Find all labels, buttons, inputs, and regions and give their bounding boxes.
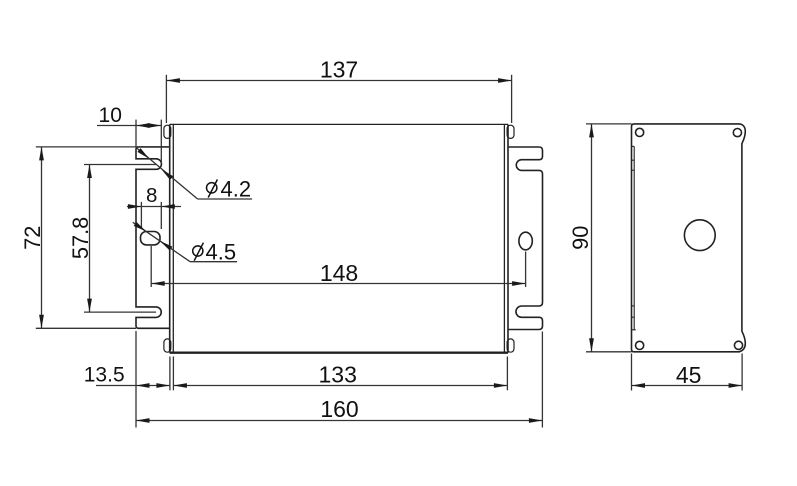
svg-text:72: 72 bbox=[20, 226, 45, 250]
svg-text:45: 45 bbox=[676, 362, 702, 388]
svg-text:90: 90 bbox=[568, 226, 593, 250]
svg-text:57.8: 57.8 bbox=[68, 217, 93, 259]
svg-text:10: 10 bbox=[99, 104, 122, 127]
svg-text:133: 133 bbox=[319, 362, 357, 388]
svg-text:13.5: 13.5 bbox=[84, 364, 125, 387]
svg-text:4.2: 4.2 bbox=[221, 176, 252, 201]
svg-text:8: 8 bbox=[146, 184, 157, 207]
svg-text:137: 137 bbox=[320, 56, 358, 82]
svg-text:160: 160 bbox=[320, 396, 358, 422]
svg-text:148: 148 bbox=[320, 260, 358, 286]
svg-text:4.5: 4.5 bbox=[206, 239, 237, 264]
